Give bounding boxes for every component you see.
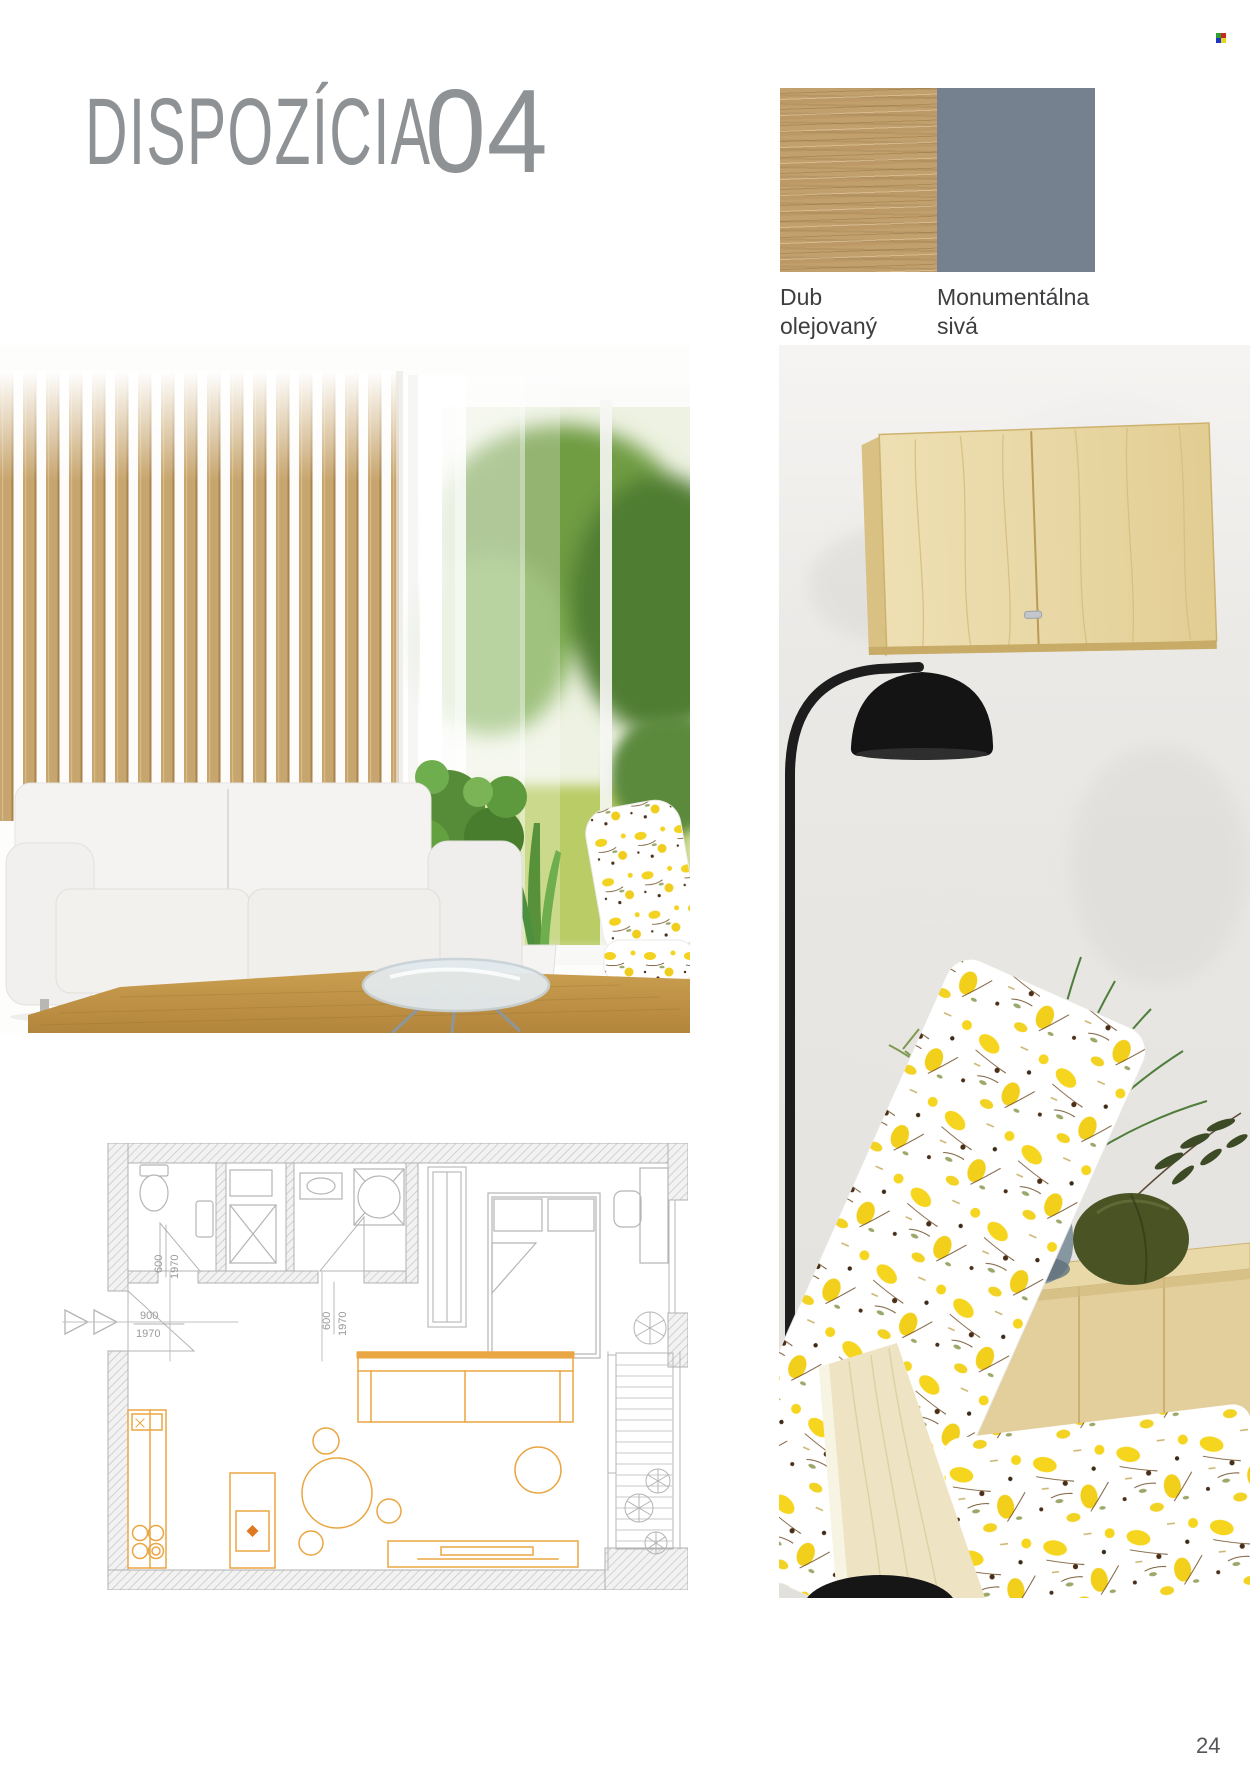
page-title-text: DISPOZÍCIA	[85, 84, 431, 180]
dim-door-shower-width: 600	[321, 1312, 333, 1330]
color-grid-icon-yellow	[1221, 38, 1226, 43]
window-right	[669, 1200, 675, 1313]
closet-shelf	[230, 1170, 272, 1196]
material-label-gray: Monumentálna sivá	[937, 283, 1089, 341]
dim-entrance-height: 1970	[136, 1328, 160, 1340]
catalog-page: DISPOZÍCIA04 Dub olejovaný Monumentálna …	[0, 0, 1250, 1768]
olive-glass-vase	[1073, 1193, 1189, 1285]
dim-door-wc-height: 1970	[169, 1255, 181, 1279]
wall-cabinet	[861, 423, 1217, 661]
plan-plants	[625, 1312, 670, 1554]
material-swatch-oak	[780, 88, 937, 272]
sofa-seat-cushion	[56, 889, 250, 993]
kitchen-counter	[128, 1410, 166, 1568]
blanket-fold	[492, 1243, 536, 1293]
floor-plan-svg: 600 1970 600 1970 900 1970	[40, 1143, 688, 1590]
washbasin	[196, 1201, 213, 1237]
furniture-detail-photo	[779, 345, 1250, 1598]
plan-dining-table	[299, 1428, 401, 1555]
material-label-oak: Dub olejovaný	[780, 283, 877, 341]
balcony	[608, 1352, 680, 1549]
dim-door-wc-width: 600	[153, 1255, 165, 1273]
toilet-bowl	[140, 1175, 168, 1211]
cabinet-marker	[247, 1525, 259, 1537]
pillow	[494, 1199, 542, 1231]
color-grid-icon	[1216, 33, 1226, 43]
dim-door-shower-height: 1970	[337, 1312, 349, 1336]
page-title: DISPOZÍCIA04	[85, 84, 560, 180]
material-swatch-gray	[937, 88, 1095, 272]
desk	[614, 1168, 668, 1263]
material-label-oak-line1: Dub	[780, 283, 877, 312]
page-number: 24	[1196, 1733, 1220, 1759]
stove-burner	[133, 1526, 148, 1541]
balcony-decking	[616, 1365, 673, 1541]
furniture-detail-photo-svg	[779, 345, 1250, 1598]
floor-plan: 600 1970 600 1970 900 1970	[40, 1143, 688, 1590]
coffee-table-top	[363, 959, 549, 1011]
tall-cabinet	[230, 1473, 275, 1568]
living-room-photo	[0, 345, 690, 1033]
balcony-door	[608, 1355, 616, 1473]
bed	[488, 1193, 600, 1358]
material-label-oak-line2: olejovaný	[780, 312, 877, 341]
dim-door-shower: 600 1970	[321, 1282, 349, 1336]
cabinet-handle	[1024, 611, 1041, 619]
dim-entrance-width: 900	[140, 1310, 158, 1322]
toilet-tank	[140, 1165, 168, 1176]
orange-furniture	[128, 1352, 578, 1568]
material-label-gray-line2: sivá	[937, 312, 1089, 341]
desk-chair	[614, 1191, 641, 1227]
plan-sofa	[358, 1352, 573, 1422]
wardrobe	[428, 1167, 466, 1327]
page-title-number: 04	[425, 84, 549, 180]
living-room-photo-svg	[0, 345, 690, 1033]
wood-slat-wall	[0, 371, 403, 821]
material-label-gray-line1: Monumentálna	[937, 283, 1089, 312]
pillow	[548, 1199, 594, 1231]
plan-tv-bench	[388, 1541, 578, 1567]
plan-round-table	[515, 1447, 561, 1493]
